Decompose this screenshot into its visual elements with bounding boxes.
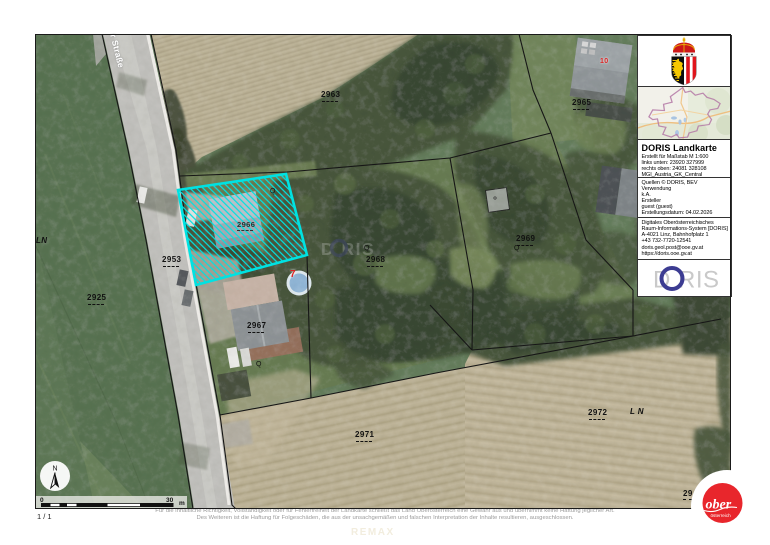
svg-text:österreich: österreich bbox=[711, 513, 732, 518]
